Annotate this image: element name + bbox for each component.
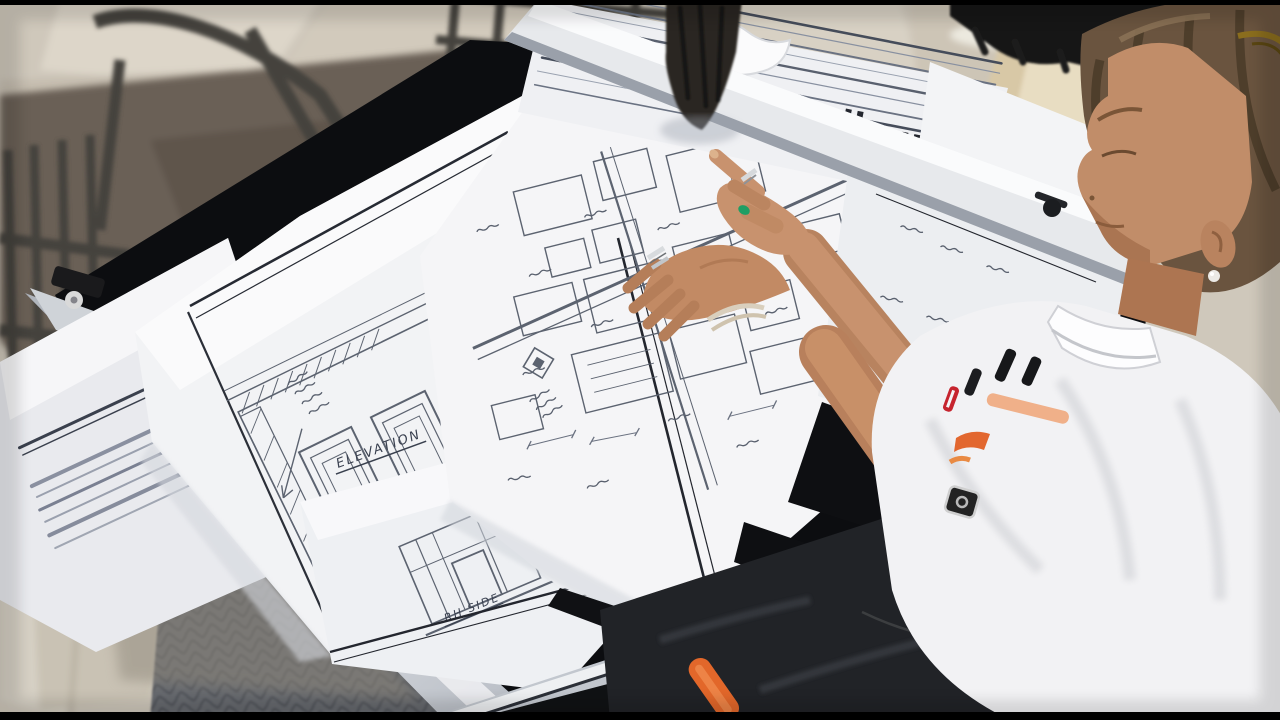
white-shirt bbox=[872, 301, 1280, 720]
pearl-earring bbox=[1208, 270, 1220, 282]
letterbox-bottom bbox=[0, 712, 1280, 720]
photo-scene: ELEVATION RH SIDE bbox=[0, 0, 1280, 720]
video-frame: ELEVATION RH SIDE bbox=[0, 0, 1280, 720]
drafting-brush bbox=[660, 0, 742, 144]
letterbox-top bbox=[0, 0, 1280, 5]
